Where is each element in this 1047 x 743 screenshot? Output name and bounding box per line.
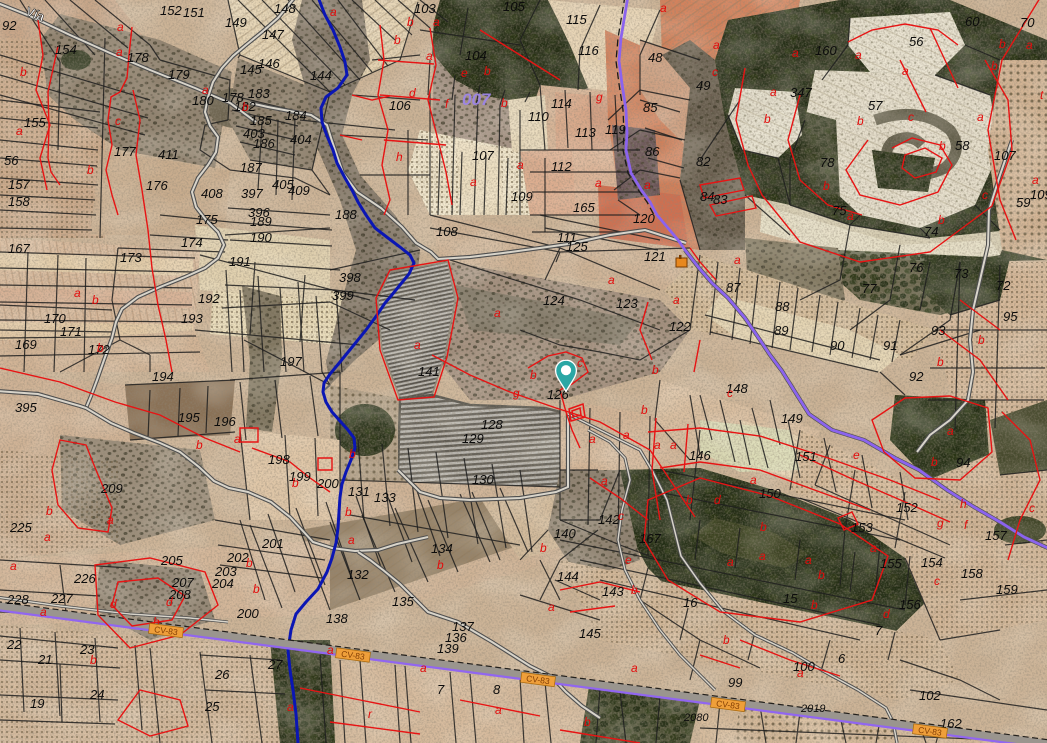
svg-text:92: 92 (909, 369, 924, 384)
svg-text:57: 57 (868, 98, 883, 113)
svg-text:c: c (727, 386, 733, 400)
svg-text:d: d (714, 493, 721, 507)
svg-text:156: 156 (899, 597, 921, 612)
svg-text:a: a (713, 38, 720, 52)
svg-text:108: 108 (436, 224, 458, 239)
svg-text:a: a (433, 15, 440, 29)
svg-text:c: c (1029, 501, 1035, 515)
svg-text:194: 194 (152, 369, 174, 384)
svg-text:151: 151 (795, 449, 817, 464)
svg-text:90: 90 (830, 338, 845, 353)
svg-text:d: d (883, 607, 890, 621)
svg-text:b: b (937, 355, 944, 369)
svg-text:b: b (253, 582, 260, 596)
svg-text:99: 99 (728, 675, 742, 690)
svg-text:a: a (517, 158, 524, 172)
svg-text:157: 157 (8, 177, 30, 192)
svg-text:b: b (857, 114, 864, 128)
svg-text:106: 106 (389, 98, 411, 113)
svg-text:g: g (513, 386, 520, 400)
svg-text:a: a (847, 209, 854, 223)
svg-text:2019: 2019 (800, 703, 825, 715)
svg-text:a: a (770, 85, 777, 99)
svg-text:130: 130 (472, 472, 494, 487)
svg-text:a: a (977, 110, 984, 124)
svg-text:b: b (991, 59, 998, 73)
svg-text:a: a (870, 541, 877, 555)
svg-text:73: 73 (954, 266, 969, 281)
svg-text:104: 104 (465, 48, 487, 63)
svg-text:a: a (40, 605, 47, 619)
svg-text:102: 102 (919, 688, 941, 703)
svg-text:a: a (348, 533, 355, 547)
svg-text:122: 122 (669, 319, 691, 334)
svg-text:19: 19 (30, 696, 44, 711)
svg-text:8: 8 (493, 682, 501, 697)
svg-text:72: 72 (996, 278, 1011, 293)
svg-text:6: 6 (838, 651, 846, 666)
svg-text:174: 174 (181, 235, 203, 250)
svg-text:158: 158 (961, 566, 983, 581)
svg-text:b: b (652, 363, 659, 377)
svg-text:c: c (982, 188, 988, 202)
svg-text:205: 205 (160, 553, 183, 568)
svg-text:a: a (750, 473, 757, 487)
svg-text:198: 198 (268, 452, 290, 467)
svg-text:b: b (723, 633, 730, 647)
svg-text:b: b (92, 293, 99, 307)
svg-text:131: 131 (348, 484, 370, 499)
svg-text:a: a (420, 661, 427, 675)
svg-text:b: b (818, 568, 825, 582)
svg-text:2080: 2080 (683, 712, 709, 724)
svg-text:89: 89 (774, 323, 788, 338)
svg-text:a: a (414, 338, 421, 352)
svg-text:a: a (644, 178, 651, 192)
svg-text:175: 175 (196, 212, 218, 227)
svg-text:h: h (960, 497, 967, 511)
svg-text:399: 399 (332, 288, 354, 303)
svg-text:a: a (107, 513, 114, 527)
svg-text:a: a (44, 530, 51, 544)
svg-text:15: 15 (783, 591, 798, 606)
svg-text:103: 103 (414, 1, 436, 16)
svg-text:b: b (246, 556, 253, 570)
svg-text:16: 16 (683, 595, 698, 610)
svg-text:b: b (764, 112, 771, 126)
svg-text:b: b (931, 455, 938, 469)
svg-text:153: 153 (851, 520, 873, 535)
svg-text:149: 149 (225, 15, 247, 30)
svg-text:b: b (97, 341, 104, 355)
svg-text:133: 133 (374, 490, 396, 505)
svg-text:e: e (461, 66, 468, 80)
svg-text:151: 151 (183, 5, 205, 20)
svg-text:a: a (673, 293, 680, 307)
svg-text:75: 75 (832, 203, 847, 218)
svg-text:b: b (349, 447, 356, 461)
svg-text:178: 178 (127, 50, 149, 65)
svg-text:176: 176 (146, 178, 168, 193)
svg-text:125: 125 (566, 239, 588, 254)
svg-text:140: 140 (554, 526, 576, 541)
svg-text:77: 77 (862, 281, 877, 296)
svg-text:a: a (589, 432, 596, 446)
svg-text:86: 86 (645, 144, 660, 159)
svg-text:189: 189 (250, 214, 272, 229)
svg-text:a: a (734, 253, 741, 267)
svg-text:c: c (618, 509, 624, 523)
svg-text:b: b (686, 493, 693, 507)
svg-text:007: 007 (462, 90, 492, 109)
svg-text:g: g (937, 516, 944, 530)
svg-text:a: a (74, 286, 81, 300)
svg-text:179: 179 (168, 67, 190, 82)
svg-text:404: 404 (290, 132, 312, 147)
svg-text:83: 83 (713, 192, 728, 207)
svg-text:a: a (1032, 173, 1039, 187)
svg-text:167: 167 (639, 531, 661, 546)
svg-text:167: 167 (8, 241, 30, 256)
svg-text:124: 124 (543, 293, 565, 308)
svg-text:b: b (437, 558, 444, 572)
svg-text:27: 27 (267, 657, 283, 672)
svg-text:b: b (407, 15, 414, 29)
svg-text:143: 143 (602, 584, 624, 599)
svg-text:113: 113 (575, 125, 596, 140)
svg-text:a: a (116, 45, 123, 59)
svg-text:a: a (595, 176, 602, 190)
svg-text:105: 105 (503, 0, 525, 14)
svg-text:152: 152 (160, 3, 182, 18)
svg-text:160: 160 (815, 43, 837, 58)
svg-text:7: 7 (437, 682, 445, 697)
svg-text:21: 21 (37, 652, 52, 667)
svg-text:200: 200 (316, 476, 339, 491)
svg-text:184: 184 (285, 108, 307, 123)
svg-text:h: h (396, 150, 403, 164)
svg-text:a: a (855, 48, 862, 62)
svg-text:a: a (947, 424, 954, 438)
svg-text:a: a (470, 175, 477, 189)
svg-text:a: a (117, 20, 124, 34)
svg-text:88: 88 (775, 299, 790, 314)
svg-text:204: 204 (211, 576, 234, 591)
svg-text:228: 228 (6, 592, 29, 607)
svg-text:408: 408 (201, 186, 223, 201)
svg-text:b: b (87, 163, 94, 177)
svg-text:56: 56 (4, 153, 19, 168)
svg-text:159: 159 (996, 582, 1018, 597)
svg-text:22: 22 (6, 637, 22, 652)
svg-text:b: b (584, 715, 591, 729)
svg-text:59: 59 (1016, 195, 1030, 210)
svg-text:95: 95 (1003, 309, 1018, 324)
svg-text:a: a (287, 700, 294, 714)
svg-text:138: 138 (326, 611, 348, 626)
svg-text:b: b (394, 33, 401, 47)
svg-text:226: 226 (73, 571, 96, 586)
svg-text:109: 109 (511, 189, 533, 204)
svg-text:c: c (712, 65, 718, 79)
svg-text:a: a (601, 474, 608, 488)
svg-text:129: 129 (462, 431, 484, 446)
svg-text:d: d (409, 86, 416, 100)
svg-text:148: 148 (274, 1, 296, 16)
svg-text:116: 116 (578, 43, 599, 58)
svg-text:a: a (494, 306, 501, 320)
svg-text:191: 191 (229, 254, 251, 269)
svg-text:91: 91 (883, 338, 897, 353)
svg-text:49: 49 (696, 78, 710, 93)
svg-text:76: 76 (909, 260, 924, 275)
svg-text:a: a (623, 428, 630, 442)
svg-text:186: 186 (253, 136, 275, 151)
svg-text:58: 58 (955, 138, 970, 153)
svg-text:a: a (727, 555, 734, 569)
svg-text:132: 132 (347, 567, 369, 582)
svg-text:a: a (670, 438, 677, 452)
svg-text:c: c (577, 356, 583, 370)
svg-text:145: 145 (240, 62, 262, 77)
svg-text:a: a (202, 83, 209, 97)
svg-text:b: b (641, 403, 648, 417)
svg-text:c: c (934, 574, 940, 588)
svg-text:a: a (608, 273, 615, 287)
svg-text:397: 397 (241, 186, 263, 201)
svg-text:145: 145 (579, 626, 601, 641)
svg-text:150: 150 (759, 486, 781, 501)
svg-text:190: 190 (250, 230, 272, 245)
svg-text:93: 93 (931, 323, 946, 338)
svg-text:94: 94 (956, 455, 970, 470)
svg-text:152: 152 (896, 500, 918, 515)
svg-text:b: b (811, 598, 818, 612)
svg-text:409: 409 (288, 183, 310, 198)
svg-text:149: 149 (781, 411, 803, 426)
svg-text:139: 139 (437, 641, 459, 656)
svg-text:225: 225 (9, 520, 32, 535)
svg-text:e: e (853, 448, 860, 462)
svg-text:a: a (1026, 38, 1033, 52)
svg-text:a: a (10, 559, 17, 573)
svg-text:147: 147 (262, 27, 284, 42)
svg-text:158: 158 (8, 194, 30, 209)
svg-text:b: b (20, 65, 27, 79)
svg-text:110: 110 (528, 109, 549, 124)
svg-text:25: 25 (204, 699, 220, 714)
svg-text:121: 121 (644, 249, 666, 264)
svg-text:157: 157 (985, 528, 1007, 543)
svg-text:c: c (908, 110, 914, 124)
svg-text:g: g (596, 90, 603, 104)
svg-text:d: d (110, 597, 117, 611)
svg-text:a: a (631, 661, 638, 675)
svg-text:114: 114 (551, 96, 572, 111)
svg-text:120: 120 (633, 211, 655, 226)
svg-text:56: 56 (909, 34, 924, 49)
svg-text:24: 24 (89, 687, 104, 702)
svg-text:146: 146 (689, 448, 711, 463)
svg-text:b: b (939, 139, 946, 153)
svg-text:227: 227 (50, 591, 73, 606)
svg-text:b: b (46, 504, 53, 518)
svg-text:a: a (654, 438, 661, 452)
svg-text:48: 48 (648, 50, 663, 65)
svg-text:82: 82 (696, 154, 711, 169)
svg-text:154: 154 (55, 42, 77, 57)
svg-text:b: b (90, 653, 97, 667)
svg-text:177: 177 (114, 144, 136, 159)
svg-text:a: a (426, 49, 433, 63)
svg-text:115: 115 (566, 12, 587, 27)
svg-text:a: a (16, 124, 23, 138)
svg-text:e: e (625, 553, 632, 567)
svg-text:154: 154 (921, 555, 943, 570)
svg-text:107: 107 (994, 148, 1016, 163)
svg-text:141: 141 (418, 364, 440, 379)
svg-text:209: 209 (100, 481, 123, 496)
svg-text:b: b (242, 100, 249, 114)
svg-text:b: b (999, 37, 1006, 51)
svg-text:26: 26 (214, 667, 230, 682)
svg-text:187: 187 (240, 160, 262, 175)
svg-text:a: a (902, 64, 909, 78)
svg-text:a: a (759, 549, 766, 563)
svg-text:155: 155 (24, 115, 46, 130)
svg-text:b: b (196, 438, 203, 452)
svg-text:a: a (797, 666, 804, 680)
svg-text:b: b (760, 520, 767, 534)
svg-text:b: b (530, 368, 537, 382)
svg-text:70: 70 (1020, 15, 1035, 30)
svg-text:128: 128 (481, 417, 503, 432)
svg-text:a: a (548, 600, 555, 614)
svg-text:135: 135 (392, 594, 414, 609)
svg-text:b: b (501, 96, 508, 110)
svg-text:192: 192 (198, 291, 220, 306)
svg-text:188: 188 (335, 207, 357, 222)
svg-text:165: 165 (573, 200, 595, 215)
svg-text:d: d (166, 595, 173, 609)
svg-text:a: a (660, 1, 667, 15)
svg-text:134: 134 (431, 541, 453, 556)
svg-text:395: 395 (15, 400, 37, 415)
svg-text:171: 171 (60, 324, 82, 339)
svg-text:a: a (330, 5, 337, 19)
svg-text:201: 201 (261, 536, 284, 551)
svg-text:92: 92 (2, 18, 17, 33)
svg-text:b: b (823, 179, 830, 193)
svg-text:60: 60 (965, 14, 980, 29)
svg-text:a: a (805, 553, 812, 567)
svg-text:347: 347 (790, 85, 812, 100)
svg-text:196: 196 (214, 414, 236, 429)
svg-text:a: a (327, 643, 334, 657)
svg-text:74: 74 (924, 224, 938, 239)
svg-text:144: 144 (310, 68, 332, 83)
svg-text:87: 87 (726, 280, 741, 295)
svg-text:b: b (978, 333, 985, 347)
svg-text:169: 169 (15, 337, 37, 352)
svg-text:107: 107 (472, 148, 494, 163)
svg-text:78: 78 (820, 155, 835, 170)
svg-text:b: b (292, 476, 299, 490)
svg-text:193: 193 (181, 311, 203, 326)
svg-text:a: a (495, 703, 502, 717)
svg-text:b: b (484, 64, 491, 78)
svg-text:398: 398 (339, 270, 361, 285)
svg-text:119: 119 (605, 122, 626, 137)
svg-text:b: b (540, 541, 547, 555)
svg-text:112: 112 (551, 159, 572, 174)
svg-text:7: 7 (875, 623, 883, 638)
svg-text:a: a (234, 432, 241, 446)
svg-text:173: 173 (120, 250, 142, 265)
svg-text:200: 200 (236, 606, 259, 621)
svg-text:c: c (115, 114, 121, 128)
svg-text:123: 123 (616, 296, 638, 311)
svg-text:109: 109 (1030, 187, 1047, 202)
svg-text:155: 155 (880, 556, 902, 571)
svg-text:195: 195 (178, 410, 200, 425)
svg-text:b: b (938, 213, 945, 227)
svg-text:411: 411 (158, 147, 179, 162)
svg-text:85: 85 (643, 100, 658, 115)
svg-text:b: b (631, 583, 638, 597)
svg-text:144: 144 (557, 569, 579, 584)
svg-text:a: a (792, 46, 799, 60)
svg-text:197: 197 (280, 354, 302, 369)
svg-text:b: b (345, 505, 352, 519)
